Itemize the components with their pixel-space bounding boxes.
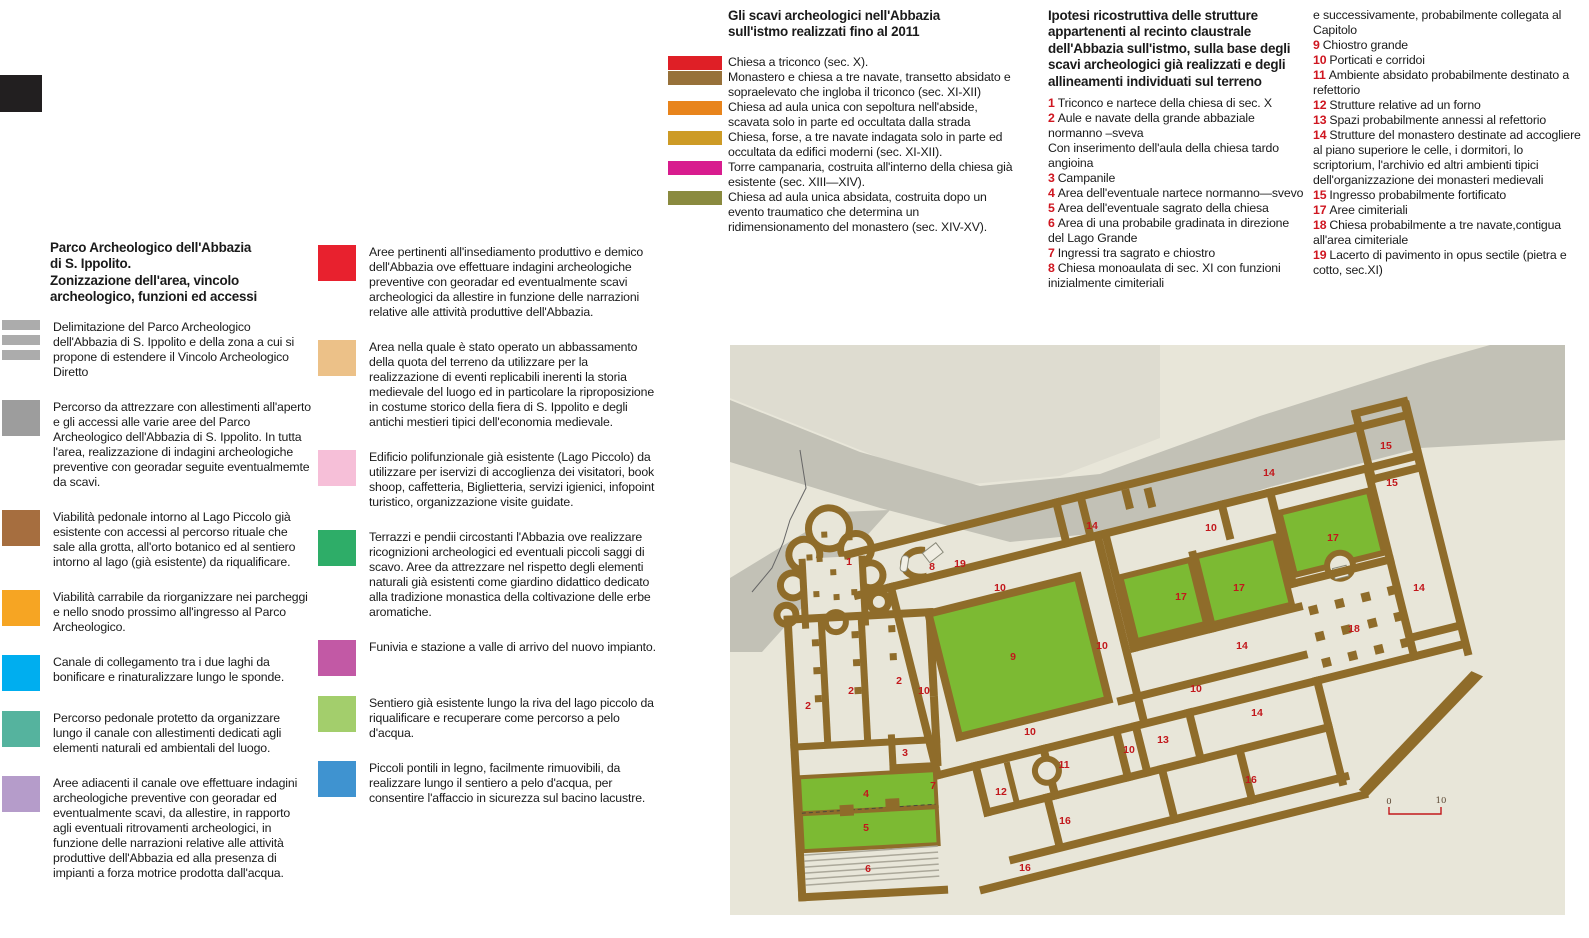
item-number: 2 (1048, 111, 1055, 125)
swatch-fill (318, 340, 356, 376)
numbered-item: 8Chiesa monoaulata di sec. XI con funzio… (1048, 261, 1306, 291)
numbered-item: 12Strutture relative ad un forno (1313, 98, 1583, 113)
legend-item: Sentiero già esistente lungo la riva del… (318, 696, 663, 741)
item-text: Porticati e corridoi (1329, 53, 1424, 67)
legend-item-text: Aree pertinenti all'insediamento produtt… (369, 245, 661, 320)
wall-tooth (888, 625, 895, 632)
numbered-item: 2Aule e navate della grande abbaziale no… (1048, 111, 1306, 141)
numbered-item: Con inserimento dell'aula della chiesa t… (1048, 141, 1306, 171)
plan-number-label: 14 (1236, 640, 1248, 652)
item-number: 10 (1313, 53, 1326, 67)
legend-item: Delimitazione del Parco Archeologico del… (2, 320, 314, 380)
plan-number-label: 13 (1157, 734, 1169, 746)
item-number: 11 (1313, 68, 1326, 82)
numbered-item: 14Strutture del monastero destinate ad a… (1313, 128, 1583, 188)
plan-number-label: 10 (1123, 744, 1135, 756)
item-number: 15 (1313, 188, 1326, 202)
color-swatch (318, 640, 356, 676)
wall-block (839, 804, 854, 816)
item-number: 1 (1048, 96, 1055, 110)
plan-number-label: 3 (902, 747, 908, 759)
color-swatch (2, 590, 40, 635)
numbered-item: 11Ambiente absidato probabilmente destin… (1313, 68, 1583, 98)
plan-number-label: 14 (1413, 582, 1425, 594)
legend-item-text: Chiesa, forse, a tre navate indagata sol… (728, 130, 1002, 159)
excavation-legend-item: Monastero e chiesa a tre navate, transet… (728, 70, 1013, 100)
legend-item: Funivia e stazione a valle di arrivo del… (318, 640, 663, 676)
excavation-legend-item: Chiesa, forse, a tre navate indagata sol… (728, 130, 1013, 160)
swatch-fill (318, 530, 356, 566)
plan-number-label: 5 (863, 822, 869, 834)
legend-item-text: Viabilità pedonale intorno al Lago Picco… (53, 510, 311, 570)
legend-scavi-title: Gli scavi archeologici nell'Abbazia sull… (728, 8, 1013, 41)
numbered-item: 6Area di una probabile gradinata in dire… (1048, 216, 1306, 246)
wall-tooth (815, 695, 822, 702)
color-swatch (318, 245, 356, 320)
item-text: Chiesa monoaulata di sec. XI con funzion… (1048, 261, 1281, 290)
wall-tooth (851, 631, 858, 638)
color-bar (668, 131, 722, 145)
plan-number-label: 16 (1019, 862, 1031, 874)
item-number: 18 (1313, 218, 1326, 232)
color-swatch (2, 510, 40, 570)
pillar (833, 594, 839, 600)
plan-number-label: 14 (1263, 467, 1275, 479)
excavation-legend-item: Torre campanaria, costruita all'interno … (728, 160, 1013, 190)
legend-item-text: Aree adiacenti il canale ove effettuare … (53, 776, 311, 881)
plan-number-label: 10 (918, 685, 930, 697)
plan-number-label: 17 (1233, 582, 1245, 594)
legend-item-text: Sentiero già esistente lungo la riva del… (369, 696, 661, 741)
legend-interventi: Aree pertinenti all'insediamento produtt… (318, 245, 663, 826)
plan-number-label: 15 (1386, 477, 1398, 489)
striped-swatch (2, 320, 40, 380)
item-text: Aule e navate della grande abbaziale nor… (1048, 111, 1255, 140)
item-number: 6 (1048, 216, 1055, 230)
plan-number-label: 17 (1175, 591, 1187, 603)
plan-number-label: 10 (1205, 522, 1217, 534)
item-number: 17 (1313, 203, 1326, 217)
swatch-fill (2, 711, 40, 747)
legend-item-text: Viabilità carrabile da riorganizzare nei… (53, 590, 311, 635)
item-number: 13 (1313, 113, 1326, 127)
numbered-item: 9Chiostro grande (1313, 38, 1583, 53)
excavation-legend-item: Chiesa ad aula unica absidata, costruita… (728, 190, 1013, 235)
item-text: Strutture relative ad un forno (1329, 98, 1480, 112)
color-bar (668, 101, 722, 115)
swatch-fill (2, 590, 40, 626)
legend-item: Percorso pedonale protetto da organizzar… (2, 711, 314, 756)
legend-item-text: Canale di collegamento tra i due laghi d… (53, 655, 311, 691)
plan-number-label: 18 (1348, 623, 1360, 635)
swatch-fill (2, 776, 40, 812)
swatch-stripe (2, 320, 40, 330)
item-number: 7 (1048, 246, 1055, 260)
logo-block (0, 75, 42, 112)
legend-item: Terrazzi e pendii circostanti l'Abbazia … (318, 530, 663, 620)
color-swatch (2, 655, 40, 691)
swatch-stripe (2, 350, 40, 360)
legend-item: Edificio polifunzionale già esistente (L… (318, 450, 663, 510)
item-text: Lacerto di pavimento in opus sectile (pi… (1313, 248, 1567, 277)
legend-item-text: Piccoli pontili in legno, facilmente rim… (369, 761, 661, 806)
numbered-item: 7Ingressi tra sagrato e chiostro (1048, 246, 1306, 261)
plan-number-label: 1 (846, 556, 852, 568)
legend-item-text: Chiesa a triconco (sec. X). (728, 55, 868, 69)
color-swatch (2, 776, 40, 881)
numbered-item: 18Chiesa probabilmente a tre navate,cont… (1313, 218, 1583, 248)
plan-number-label: 2 (805, 700, 811, 712)
swatch-fill (318, 245, 356, 281)
legend-item: Canale di collegamento tra i due laghi d… (2, 655, 314, 691)
pillar (821, 531, 827, 537)
item-text: Triconco e nartece della chiesa di sec. … (1058, 96, 1272, 110)
swatch-fill (318, 761, 356, 797)
color-swatch (2, 400, 40, 490)
wall-tooth (854, 687, 861, 694)
legend-item-text: Chiesa ad aula unica con sepoltura nell'… (728, 100, 978, 129)
color-swatch (318, 530, 356, 620)
pillar (846, 534, 852, 540)
item-text: Chiostro grande (1323, 38, 1408, 52)
numbered-item: 3Campanile (1048, 171, 1306, 186)
pillar (806, 554, 812, 560)
plan-number-label: 7 (930, 780, 936, 792)
numbered-item: 1Triconco e nartece della chiesa di sec.… (1048, 96, 1306, 111)
wall-tooth (812, 639, 819, 646)
plan-number-label: 6 (865, 863, 871, 875)
color-bar (668, 191, 722, 205)
color-swatch (318, 340, 356, 430)
legend-item-text: Torre campanaria, costruita all'interno … (728, 160, 1012, 189)
legend-item-text: Delimitazione del Parco Archeologico del… (53, 320, 311, 380)
color-bar (668, 56, 722, 70)
plan-number-label: 10 (1096, 640, 1108, 652)
plan-number-label: 2 (848, 685, 854, 697)
color-bar (668, 71, 722, 85)
numbered-item: 4Area dell'eventuale nartece normanno—sv… (1048, 186, 1306, 201)
item-text: Campanile (1058, 171, 1115, 185)
item-number: 3 (1048, 171, 1055, 185)
swatch-fill (318, 640, 356, 676)
legend-zonizzazione-title: Parco Archeologico dell'Abbazia di S. Ip… (50, 240, 312, 306)
legend-item-text: Area nella quale è stato operato un abba… (369, 340, 661, 430)
plan-number-label: 16 (1245, 774, 1257, 786)
item-text: Ingressi tra sagrato e chiostro (1058, 246, 1215, 260)
wall-tooth (853, 659, 860, 666)
color-bar (668, 161, 722, 175)
legend-item: Viabilità carrabile da riorganizzare nei… (2, 590, 314, 635)
swatch-fill (2, 655, 40, 691)
legend-item: Aree pertinenti all'insediamento produtt… (318, 245, 663, 320)
numbered-item: 10Porticati e corridoi (1313, 53, 1583, 68)
item-text: Con inserimento dell'aula della chiesa t… (1048, 141, 1279, 170)
plan-number-label: 14 (1251, 707, 1263, 719)
legend-item: Aree adiacenti il canale ove effettuare … (2, 776, 314, 881)
item-text: Area dell'eventuale nartece normanno—sve… (1058, 186, 1304, 200)
swatch-fill (318, 450, 356, 486)
legend-item-text: Edificio polifunzionale già esistente (L… (369, 450, 661, 510)
plan-number-label: 11 (1058, 759, 1069, 771)
plan-number-label: 19 (954, 558, 966, 570)
color-swatch (318, 450, 356, 510)
color-swatch (2, 711, 40, 756)
site-plan-svg: 1819141415151010171717141814922210103745… (730, 345, 1565, 915)
numbered-item: 19Lacerto di pavimento in opus sectile (… (1313, 248, 1583, 278)
legend-item-text: Monastero e chiesa a tre navate, transet… (728, 70, 1011, 99)
plan-number-label: 14 (1086, 520, 1098, 532)
item-number: 12 (1313, 98, 1326, 112)
legend-ipotesi-list-2: e successivamente, probabilmente collega… (1313, 8, 1583, 278)
scale-label-end: 10 (1436, 796, 1447, 806)
item-text: Strutture del monastero destinate ad acc… (1313, 128, 1581, 187)
excavation-legend-item: Chiesa ad aula unica con sepoltura nell'… (728, 100, 1013, 130)
pillar (816, 556, 822, 562)
plan-number-label: 15 (1380, 440, 1392, 452)
legend-item-text: Percorso pedonale protetto da organizzar… (53, 711, 311, 756)
wall-tooth (813, 667, 820, 674)
legend-item: Piccoli pontili in legno, facilmente rim… (318, 761, 663, 806)
swatch-fill (318, 696, 356, 732)
plan-number-label: 16 (1059, 815, 1071, 827)
numbered-item: e successivamente, probabilmente collega… (1313, 8, 1583, 38)
wall-tooth (890, 653, 897, 660)
legend-ipotesi-title: Ipotesi ricostruttiva delle strutture ap… (1048, 8, 1306, 90)
legend-scavi: Chiesa a triconco (sec. X).Monastero e c… (728, 55, 1013, 235)
item-number: 19 (1313, 248, 1326, 262)
item-text: Area dell'eventuale sagrato della chiesa (1058, 201, 1269, 215)
swatch-fill (2, 510, 40, 546)
legend-item-text: Percorso da attrezzare con allestimenti … (53, 400, 311, 490)
item-text: Aree cimiteriali (1329, 203, 1407, 217)
swatch-stripe (2, 335, 40, 345)
item-number: 4 (1048, 186, 1055, 200)
plan-number-label: 10 (1190, 683, 1202, 695)
legend-item-text: Funivia e stazione a valle di arrivo del… (369, 640, 661, 676)
numbered-item: 5Area dell'eventuale sagrato della chies… (1048, 201, 1306, 216)
site-plan: 1819141415151010171717141814922210103745… (730, 345, 1565, 915)
scale-label-start: 0 (1386, 797, 1391, 807)
item-text: Ingresso probabilmente fortificato (1329, 188, 1506, 202)
plan-number-label: 9 (1010, 651, 1016, 663)
legend-item: Viabilità pedonale intorno al Lago Picco… (2, 510, 314, 570)
swatch-fill (2, 400, 40, 436)
wall-block (885, 798, 900, 810)
legend-item-text: Terrazzi e pendii circostanti l'Abbazia … (369, 530, 661, 620)
plan-number-label: 2 (896, 675, 902, 687)
legend-item: Area nella quale è stato operato un abba… (318, 340, 663, 430)
plan-number-label: 17 (1327, 532, 1339, 544)
plan-number-label: 12 (995, 786, 1007, 798)
numbered-item: 15Ingresso probabilmente fortificato (1313, 188, 1583, 203)
color-swatch (318, 761, 356, 806)
plan-number-label: 10 (1024, 726, 1036, 738)
legend-item: Percorso da attrezzare con allestimenti … (2, 400, 314, 490)
green-area (801, 807, 939, 851)
numbered-item: 13Spazi probabilmente annessi al refetto… (1313, 113, 1583, 128)
legend-zonizzazione: Delimitazione del Parco Archeologico del… (2, 320, 314, 901)
legend-ipotesi-list-1: 1Triconco e nartece della chiesa di sec.… (1048, 96, 1306, 291)
item-text: Ambiente absidato probabilmente destinat… (1313, 68, 1569, 97)
excavation-legend-item: Chiesa a triconco (sec. X). (728, 55, 1013, 70)
pillar (830, 569, 836, 575)
item-number: 8 (1048, 261, 1055, 275)
item-text: Spazi probabilmente annessi al refettori… (1329, 113, 1546, 127)
plan-number-label: 10 (994, 582, 1006, 594)
plan-number-label: 4 (863, 788, 869, 800)
pillar (813, 591, 819, 597)
item-text: Chiesa probabilmente a tre navate,contig… (1313, 218, 1561, 247)
plan-number-label: 8 (929, 561, 935, 573)
numbered-item: 17Aree cimiteriali (1313, 203, 1583, 218)
item-text: e successivamente, probabilmente collega… (1313, 8, 1561, 37)
item-number: 5 (1048, 201, 1055, 215)
item-number: 9 (1313, 38, 1320, 52)
item-text: Area di una probabile gradinata in direz… (1048, 216, 1289, 245)
color-swatch (318, 696, 356, 741)
item-number: 14 (1313, 128, 1326, 142)
legend-item-text: Chiesa ad aula unica absidata, costruita… (728, 190, 987, 234)
